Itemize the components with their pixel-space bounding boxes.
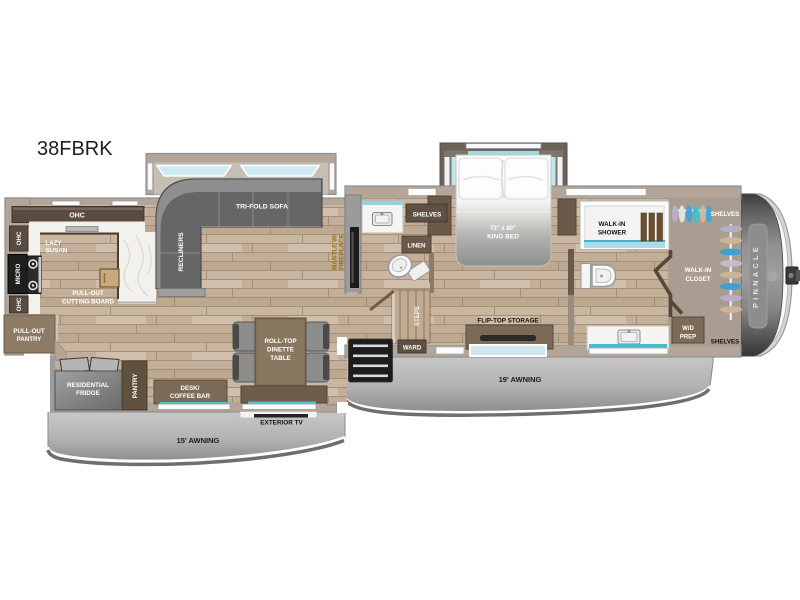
svg-text:FLIP-TOP STORAGE: FLIP-TOP STORAGE	[477, 318, 538, 325]
svg-text:SHELVES: SHELVES	[711, 339, 739, 346]
svg-text:PANTRY: PANTRY	[17, 336, 43, 343]
svg-text:LAZY: LAZY	[46, 240, 63, 247]
svg-text:W/D: W/D	[682, 326, 694, 332]
svg-text:STEPS: STEPS	[415, 306, 421, 326]
svg-text:ROLL-TOP: ROLL-TOP	[264, 338, 296, 345]
svg-text:PREP: PREP	[680, 335, 696, 341]
svg-text:OHC: OHC	[16, 297, 23, 311]
svg-text:SHELVES: SHELVES	[413, 212, 441, 219]
svg-text:WALK-IN: WALK-IN	[685, 267, 712, 274]
svg-text:OHC: OHC	[69, 213, 85, 220]
svg-text:FIREPLACE: FIREPLACE	[339, 234, 346, 270]
svg-text:MANTLE W/: MANTLE W/	[332, 234, 339, 270]
svg-text:MICRO: MICRO	[15, 264, 22, 285]
svg-text:WALK-IN: WALK-IN	[599, 221, 626, 228]
svg-text:TRI-FOLD SOFA: TRI-FOLD SOFA	[236, 204, 288, 211]
svg-text:38FBRK: 38FBRK	[37, 138, 113, 160]
svg-text:PULL-OUT: PULL-OUT	[13, 328, 44, 335]
svg-text:PANTRY: PANTRY	[132, 373, 139, 399]
svg-text:RESIDENTIAL: RESIDENTIAL	[67, 382, 109, 389]
svg-text:DESK/: DESK/	[181, 385, 200, 392]
svg-text:PINNACLE: PINNACLE	[751, 244, 760, 308]
svg-text:FRIDGE: FRIDGE	[76, 390, 100, 397]
svg-text:OHC: OHC	[16, 231, 23, 245]
svg-text:COFFEE BAR: COFFEE BAR	[170, 393, 211, 400]
svg-text:EXTERIOR TV: EXTERIOR TV	[260, 420, 303, 427]
svg-text:RECLINERS: RECLINERS	[178, 232, 185, 272]
svg-text:SUSAN: SUSAN	[46, 248, 68, 255]
svg-text:WARD: WARD	[403, 346, 422, 352]
svg-text:PULL-OUT: PULL-OUT	[72, 290, 103, 297]
svg-text:CLOSET: CLOSET	[685, 276, 710, 283]
svg-text:CUTTING BOARD: CUTTING BOARD	[62, 299, 114, 306]
svg-text:15' AWNING: 15' AWNING	[177, 436, 220, 445]
svg-text:19' AWNING: 19' AWNING	[499, 375, 542, 384]
svg-text:SHOWER: SHOWER	[598, 230, 627, 237]
svg-text:SHELVES: SHELVES	[711, 211, 739, 218]
svg-text:KING BED: KING BED	[487, 234, 519, 241]
svg-text:LINEN: LINEN	[408, 244, 426, 250]
svg-text:TABLE: TABLE	[270, 355, 291, 362]
svg-text:DINETTE: DINETTE	[267, 347, 294, 354]
svg-text:72" x 80": 72" x 80"	[490, 226, 516, 232]
